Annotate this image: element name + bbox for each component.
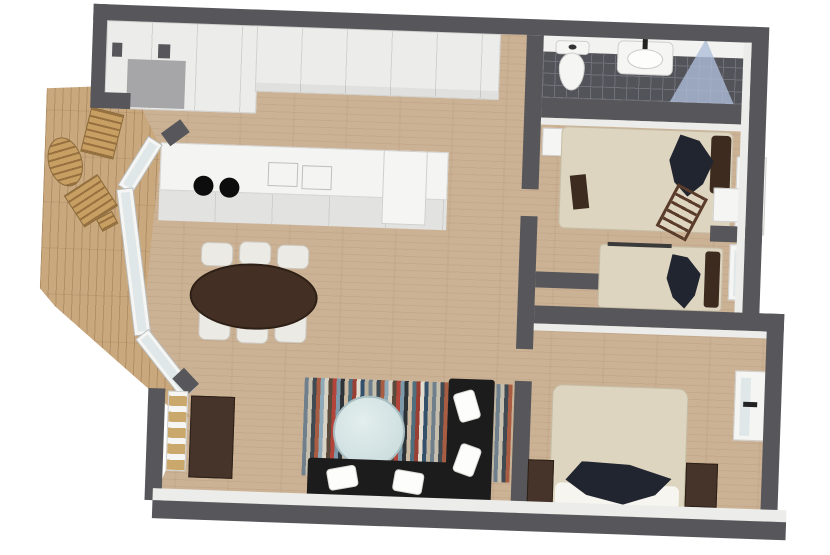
floorplan (23, 0, 822, 555)
entry-floor-mat (126, 59, 186, 109)
sofa-cushion (452, 442, 483, 478)
bedroom2-pillow (704, 251, 721, 307)
kitchen-wardrobe-cabinets (255, 26, 501, 100)
kitchen-tall-cabinet (381, 150, 428, 225)
toilet-lid-dot (568, 44, 576, 49)
dining-chair-top-1 (201, 242, 234, 267)
master-nightstand-left (527, 459, 555, 504)
sofa-vertical (445, 378, 495, 504)
dining-chair-top-3 (277, 244, 310, 269)
entry-bottom-wall (90, 92, 131, 109)
kitchen-sink-bowl-2 (301, 165, 332, 190)
sofa-cushion (392, 469, 425, 496)
entry-wall-stub-1 (112, 42, 122, 56)
master-nightstand-right (685, 463, 719, 508)
sofa-cushion (326, 464, 359, 491)
dining-chair-top-2 (239, 241, 272, 266)
bedroom1-pillow (710, 135, 732, 194)
sideboard (188, 395, 235, 478)
bathroom (542, 34, 758, 105)
sofa-cushion (452, 389, 481, 424)
master-window-unit (733, 370, 767, 441)
sink-tap (643, 39, 648, 49)
shelf-unit (166, 391, 189, 472)
window-handle (743, 402, 757, 407)
bedroom1-throw (570, 174, 589, 209)
floorplan-canvas (0, 0, 830, 555)
entry-wall-stub-2 (158, 44, 170, 58)
kitchen-sink-bowl-1 (268, 162, 299, 187)
exterior-mask-right (758, 9, 830, 317)
